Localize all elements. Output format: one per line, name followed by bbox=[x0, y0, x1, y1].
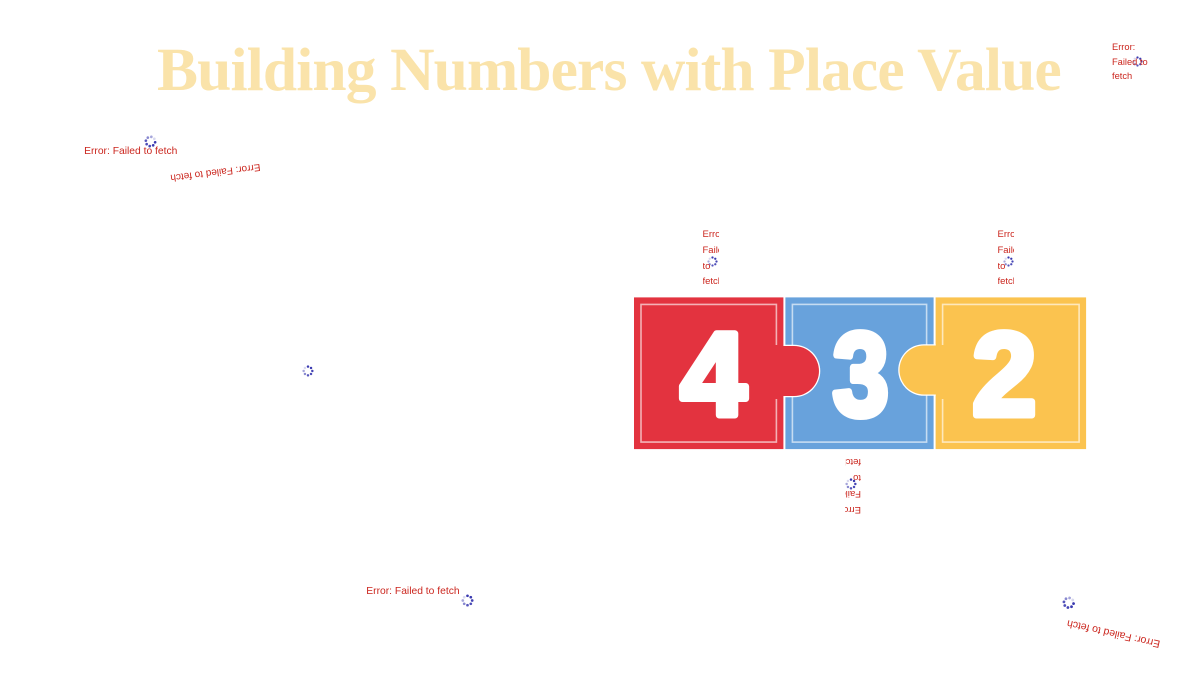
svg-text:4: 4 bbox=[681, 309, 747, 441]
svg-text:3: 3 bbox=[833, 309, 889, 441]
svg-text:2: 2 bbox=[972, 309, 1036, 441]
